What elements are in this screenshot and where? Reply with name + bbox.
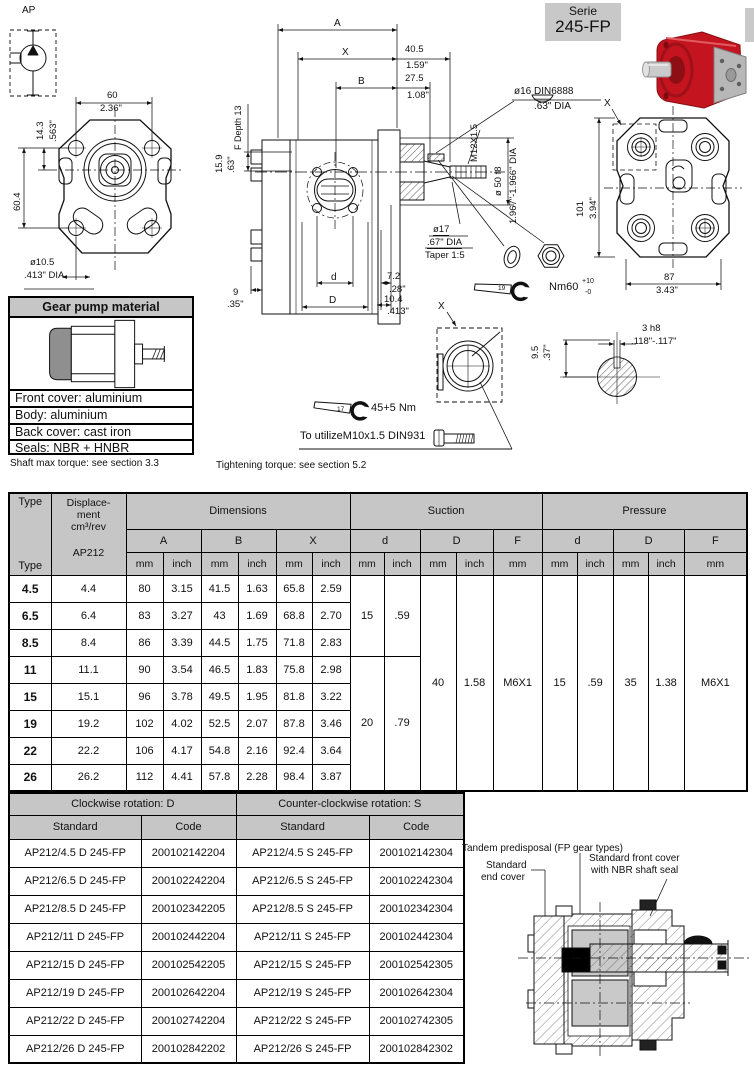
- suction-d1-mm: 15: [350, 575, 384, 656]
- callout-shaft-in: .67" DIA: [427, 238, 462, 249]
- pressure-D-mm: 35: [613, 575, 648, 791]
- datasheet-page: AP 60 2.36" 14.3 .563" 60.4 ø10.5 .413" …: [0, 0, 754, 1069]
- front-cover-label-2: with NBR shaft seal: [591, 866, 678, 877]
- rear-view-drawing: [594, 106, 742, 290]
- callout-key: ø16 DIN6888: [514, 87, 573, 98]
- dim-hole: ø10.5: [30, 258, 54, 268]
- codes-row: AP212/26 D 245-FP200102842202AP212/26 S …: [9, 1035, 464, 1063]
- dim-563in: .563": [49, 120, 59, 142]
- dim-604: 60.4: [13, 193, 23, 212]
- bolt-note: To utilizeM10x1.5 DIN931: [300, 431, 425, 443]
- ap-hydraulic-symbol: [10, 30, 56, 96]
- col-suction-F: F: [493, 529, 542, 552]
- group-dimensions: Dimensions: [126, 493, 350, 529]
- callout-shaft: ø17: [433, 225, 449, 236]
- col-pressure-D: D: [613, 529, 684, 552]
- ap-label: AP: [22, 6, 35, 17]
- dim-A: A: [334, 19, 341, 30]
- dim-104: 10.4: [384, 295, 403, 305]
- end-cover-label-1: Standard: [486, 861, 527, 872]
- group-suction: Suction: [350, 493, 542, 529]
- callout-key-in: .63" DIA: [534, 102, 571, 113]
- wrench-17-size: 17: [337, 407, 344, 414]
- dim-60: 60: [107, 91, 118, 101]
- col-pressure-F: F: [684, 529, 747, 552]
- dim-B: B: [358, 77, 365, 88]
- dim-108in: 1.08": [407, 91, 429, 101]
- col-type: TypeType: [9, 493, 51, 575]
- front-cover-label-1: Standard front cover: [589, 854, 680, 865]
- suction-F: M6X1: [493, 575, 542, 791]
- dim-72: 7.2: [387, 272, 400, 282]
- material-row: Back cover: cast iron: [10, 423, 192, 440]
- dim-159mm: 15.9: [215, 155, 225, 174]
- ordering-codes-table: Clockwise rotation: D Counter-clockwise …: [8, 792, 465, 1064]
- codes-row: AP212/11 D 245-FP200102442204AP212/11 S …: [9, 923, 464, 951]
- bolt-icon: [434, 430, 474, 446]
- suction-D-in: 1.58: [456, 575, 493, 791]
- pressure-d-in: .59: [577, 575, 613, 791]
- dim-hole-in: .413" DIA: [24, 271, 64, 281]
- dim-95: 9.5: [531, 346, 541, 359]
- dim-394in: 3.94": [589, 197, 599, 219]
- callout-pilot-in: 1.967"-1.966" DIA: [509, 148, 519, 224]
- suction-d1-in: .59: [384, 575, 420, 656]
- pump-photo: [643, 8, 754, 108]
- nut-icon: [538, 245, 564, 268]
- col-A: A: [126, 529, 201, 552]
- suction-d2-in: .79: [384, 656, 420, 791]
- table-header-groups: TypeType Displace-mentcm³/revAP212 Dimen…: [9, 493, 747, 529]
- dim-fdepth: F Depth 13: [234, 105, 243, 150]
- xdetail-x-label: X: [438, 302, 445, 313]
- pressure-d-mm: 15: [542, 575, 577, 791]
- dim-3h8-in: .118"-.117": [631, 337, 676, 347]
- dim-3h8: 3 h8: [642, 324, 661, 334]
- torque-sup: +10: [582, 278, 594, 285]
- col-pressure-d: d: [542, 529, 613, 552]
- suction-d2-mm: 20: [350, 656, 384, 791]
- col-suction-D: D: [420, 529, 493, 552]
- material-box-title: Gear pump material: [10, 298, 192, 318]
- material-box: Gear pump material Front cover: aluminiu…: [8, 296, 194, 455]
- dims-row: 4.54.4 803.15 41.51.63 65.82.59 15 .59 4…: [9, 575, 747, 602]
- material-row: Seals: NBR + HNBR: [10, 439, 192, 456]
- torque-45nm: 45+5 Nm: [371, 403, 416, 415]
- codes-header-rotation: Clockwise rotation: D Counter-clockwise …: [9, 793, 464, 815]
- dim-236in: 2.36": [100, 104, 122, 114]
- note-tightening-torque: Tightening torque: see section 5.2: [216, 461, 366, 472]
- dim-405: 40.5: [405, 45, 424, 55]
- dim-X: X: [342, 48, 349, 59]
- col-X: X: [276, 529, 350, 552]
- dim-159in: 1.59": [406, 61, 428, 71]
- dim-Dbig: D: [329, 296, 336, 307]
- col-B: B: [201, 529, 276, 552]
- dimensions-table: TypeType Displace-mentcm³/revAP212 Dimen…: [8, 492, 748, 792]
- wrench-19-size: 19: [498, 286, 505, 293]
- series-value: 245-FP: [545, 18, 621, 37]
- washer-icon: [501, 244, 522, 270]
- codes-row: AP212/15 D 245-FP200102542205AP212/15 S …: [9, 951, 464, 979]
- ccw-code-col: Code: [369, 815, 464, 839]
- cw-standard-col: Standard: [9, 815, 141, 839]
- torque-nm60: Nm60: [549, 282, 578, 294]
- callout-taper: Taper 1:5: [425, 251, 465, 261]
- x-detail-drawing: [299, 312, 512, 449]
- rear-x-label: X: [604, 99, 611, 110]
- pump-side-icon: [10, 318, 192, 389]
- codes-row: AP212/4.5 D 245-FP200102142204AP212/4.5 …: [9, 839, 464, 867]
- dim-37in: .37": [543, 344, 553, 361]
- dim-275: 27.5: [405, 74, 424, 84]
- torque-sub: -0: [585, 289, 591, 296]
- callout-pilot: ø 50 f8: [494, 166, 504, 196]
- callout-thread: M12X1.5: [470, 124, 480, 162]
- suction-D-mm: 40: [420, 575, 456, 791]
- note-shaft-torque: Shaft max torque: see section 3.3: [10, 459, 159, 470]
- series-badge: Serie 245-FP: [545, 3, 621, 41]
- dim-413in: .413": [387, 307, 409, 317]
- dim-35in: .35": [227, 300, 244, 310]
- col-displacement: Displace-mentcm³/revAP212: [51, 493, 126, 575]
- dim-63in: .63": [227, 156, 237, 173]
- ccw-standard-col: Standard: [236, 815, 369, 839]
- codes-row: AP212/8.5 D 245-FP200102342205AP212/8.5 …: [9, 895, 464, 923]
- ccw-header: Counter-clockwise rotation: S: [236, 793, 464, 815]
- cw-header: Clockwise rotation: D: [9, 793, 236, 815]
- pressure-D-in: 1.38: [648, 575, 684, 791]
- cw-code-col: Code: [141, 815, 236, 839]
- dim-d: d: [331, 273, 337, 284]
- group-pressure: Pressure: [542, 493, 747, 529]
- material-row: Front cover: aluminium: [10, 389, 192, 406]
- dim-143: 14.3: [36, 122, 46, 141]
- codes-row: AP212/6.5 D 245-FP200102242204AP212/6.5 …: [9, 867, 464, 895]
- material-row: Body: aluminium: [10, 406, 192, 423]
- dim-9: 9: [233, 288, 238, 298]
- end-cover-label-2: end cover: [481, 873, 525, 884]
- codes-row: AP212/19 D 245-FP200102642204AP212/19 S …: [9, 979, 464, 1007]
- pressure-F: M6X1: [684, 575, 747, 791]
- codes-header-cols: Standard Code Standard Code: [9, 815, 464, 839]
- dim-343in: 3.43": [656, 286, 678, 296]
- dim-101: 101: [576, 201, 586, 217]
- wrench-17-icon: [313, 395, 375, 421]
- col-suction-d: d: [350, 529, 420, 552]
- codes-row: AP212/22 D 245-FP200102742204AP212/22 S …: [9, 1007, 464, 1035]
- dim-87: 87: [664, 273, 675, 283]
